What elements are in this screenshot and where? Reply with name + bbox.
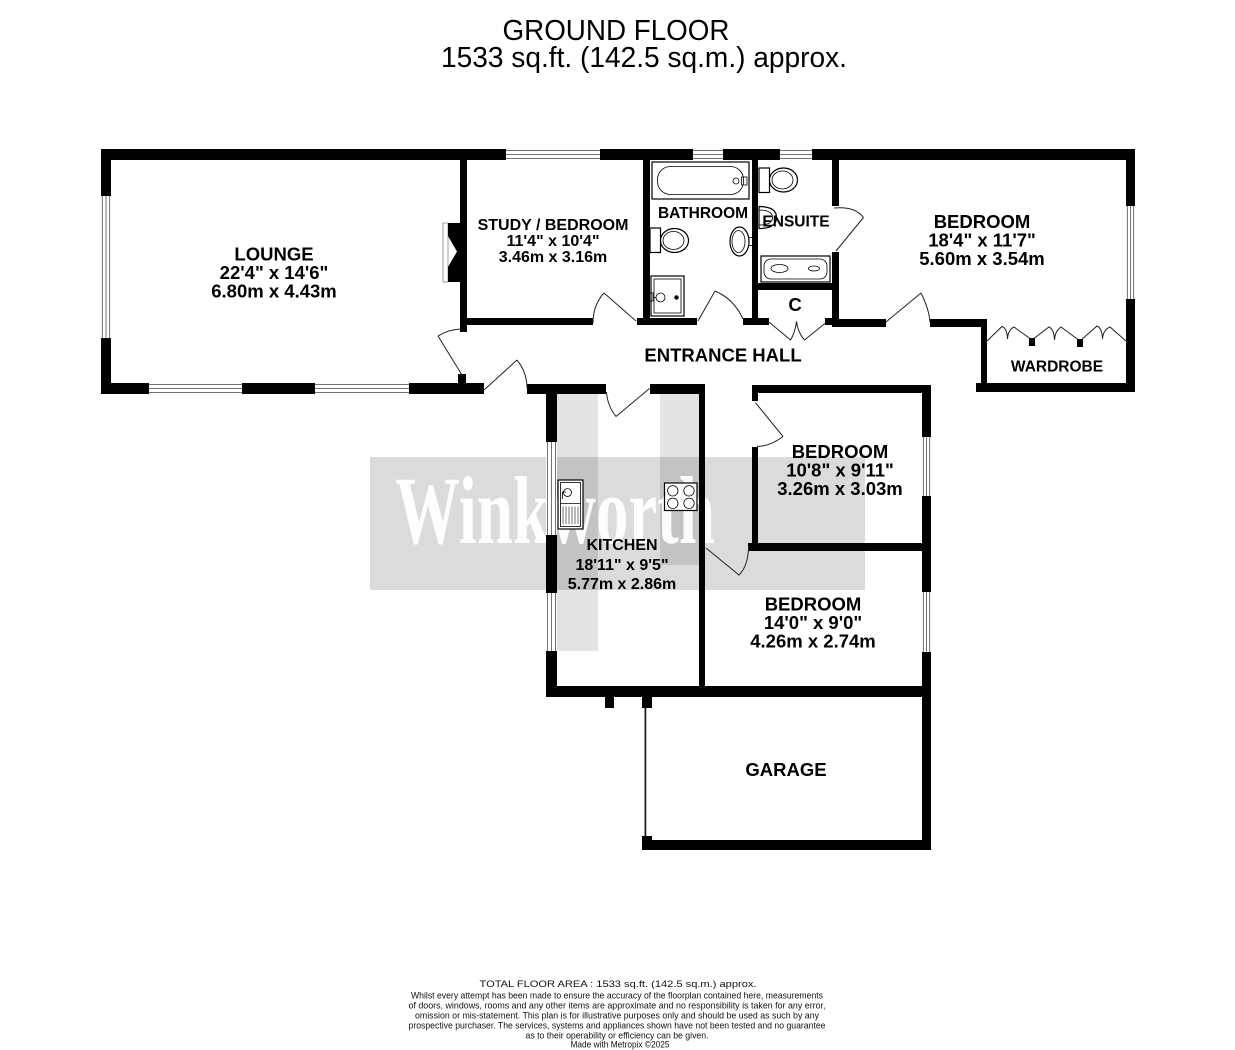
svg-text:3.26m x 3.03m: 3.26m x 3.03m [777, 478, 902, 499]
svg-text:5.60m x 3.54m: 5.60m x 3.54m [919, 248, 1044, 269]
svg-text:1533 sq.ft. (142.5 sq.m.) appr: 1533 sq.ft. (142.5 sq.m.) approx. [441, 42, 847, 74]
svg-text:Whilst every attempt has been: Whilst every attempt has been made to en… [411, 991, 823, 1001]
svg-text:5.77m x 2.86m: 5.77m x 2.86m [568, 576, 677, 593]
svg-text:4.26m x 2.74m: 4.26m x 2.74m [750, 631, 875, 652]
svg-text:BATHROOM: BATHROOM [658, 205, 748, 222]
svg-text:KITCHEN: KITCHEN [586, 537, 657, 554]
svg-text:11'4" x 10'4": 11'4" x 10'4" [506, 233, 599, 250]
svg-text:prospective purchaser. The ser: prospective purchaser. The services, sys… [409, 1021, 826, 1031]
svg-text:GARAGE: GARAGE [745, 759, 826, 780]
svg-text:omission or mis-statement. Thi: omission or mis-statement. This plan is … [415, 1011, 819, 1021]
svg-text:STUDY / BEDROOM: STUDY / BEDROOM [478, 217, 629, 234]
svg-text:18'11" x 9'5": 18'11" x 9'5" [575, 557, 668, 574]
svg-text:Made with Metropix ©2025: Made with Metropix ©2025 [571, 1040, 670, 1050]
svg-text:6.80m x 4.43m: 6.80m x 4.43m [211, 281, 336, 302]
svg-text:of doors, windows, rooms and a: of doors, windows, rooms and any other i… [409, 1001, 826, 1011]
svg-text:3.46m x 3.16m: 3.46m x 3.16m [499, 249, 608, 266]
svg-text:WARDROBE: WARDROBE [1011, 359, 1103, 376]
svg-text:ENTRANCE HALL: ENTRANCE HALL [644, 345, 801, 366]
svg-text:ENSUITE: ENSUITE [762, 214, 829, 231]
svg-text:TOTAL FLOOR AREA : 1533 sq.ft.: TOTAL FLOOR AREA : 1533 sq.ft. (142.5 sq… [480, 979, 757, 989]
svg-text:C: C [788, 294, 801, 315]
